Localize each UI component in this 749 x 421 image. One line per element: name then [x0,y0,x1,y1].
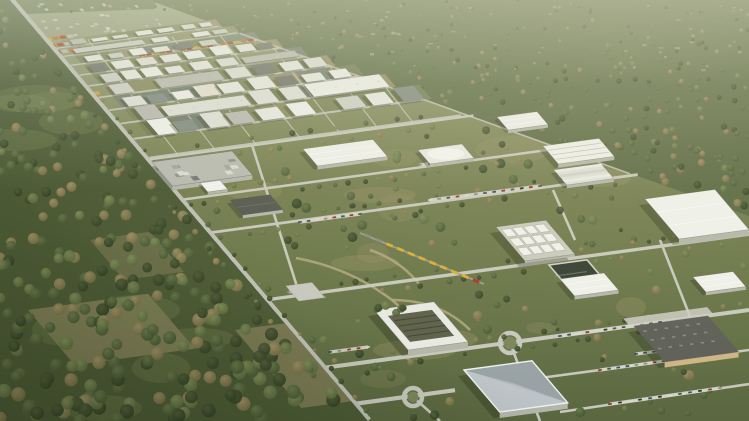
layer-atmosphere [0,0,749,421]
corner-vignette [0,0,749,421]
render-svg [0,0,749,421]
aerial-render [0,0,749,421]
